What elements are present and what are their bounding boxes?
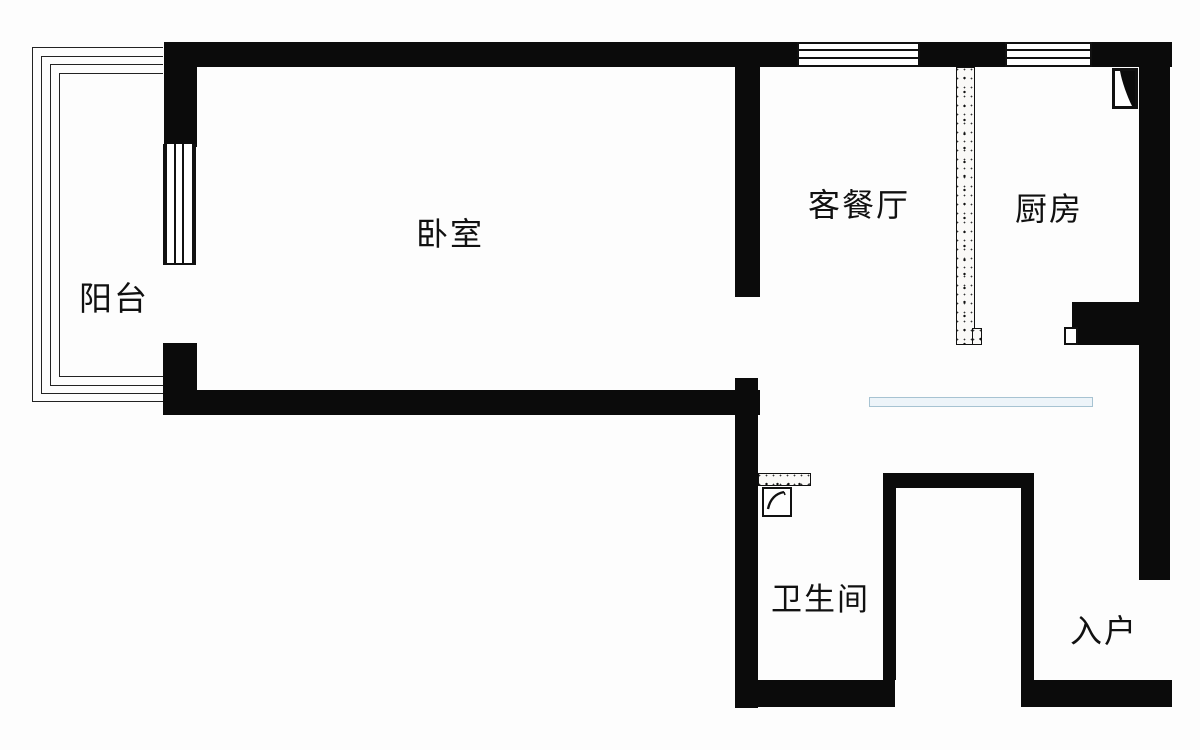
- balcony-railing-line: [59, 73, 163, 377]
- wall-top-bedroom-living: [164, 42, 797, 67]
- flue-icon: [1112, 68, 1138, 109]
- wall-left-upper: [164, 42, 197, 147]
- partition-wall-kitchen: [956, 67, 975, 345]
- window-pane-line: [1007, 49, 1090, 51]
- floor-drain-icon: [762, 487, 792, 517]
- wall-shaft-top: [883, 473, 1034, 488]
- wall-bathroom-bottom: [735, 680, 895, 707]
- partition-wall-foot: [972, 328, 982, 345]
- room-label-balcony: 阳台: [79, 272, 149, 320]
- wall-endcap-icon: [1064, 327, 1078, 345]
- wall-bedroom-bottom: [197, 390, 760, 415]
- room-label-entry: 入户: [1070, 606, 1138, 652]
- room-label-kitchen: 厨房: [1015, 184, 1083, 230]
- window-pane-line: [1007, 57, 1090, 59]
- room-label-living-dining: 客餐厅: [808, 180, 910, 226]
- window-pane-line: [799, 49, 918, 51]
- window-icon: [1005, 42, 1092, 67]
- wall-bathroom-left: [735, 378, 758, 708]
- room-label-bathroom: 卫生间: [771, 574, 870, 619]
- wall-bedroom-living-divider: [735, 67, 760, 297]
- wall-left-lower: [163, 343, 197, 415]
- wall-entry-bottom: [1021, 680, 1172, 707]
- window-pane-line: [182, 144, 184, 263]
- wall-shaft-left: [883, 473, 896, 680]
- window-icon: [163, 144, 196, 265]
- wall-kitchen-bottom: [1072, 302, 1170, 345]
- floor-plan: 阳台 卧室 客餐厅 厨房 卫生间 入户: [0, 0, 1200, 750]
- room-label-bedroom: 卧室: [416, 209, 484, 255]
- window-pane-line: [799, 57, 918, 59]
- bay-window-icon: [869, 397, 1093, 407]
- wall-shaft-right: [1021, 473, 1034, 680]
- wall-top-between-windows: [920, 42, 1005, 67]
- bathroom-counter-icon: [758, 473, 811, 486]
- window-pane-line: [174, 144, 176, 263]
- window-icon: [797, 42, 920, 67]
